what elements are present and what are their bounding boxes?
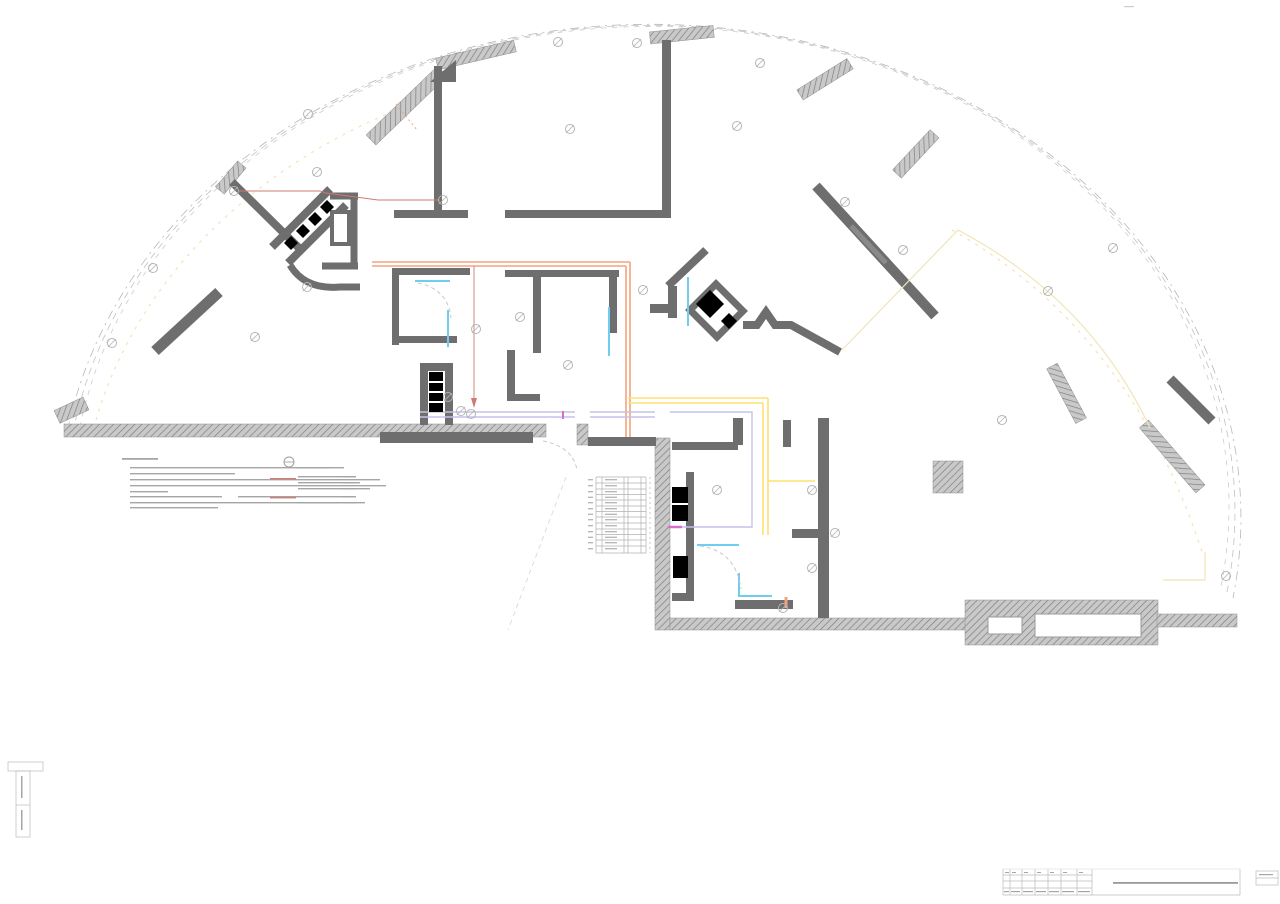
junction-symbol-tick (633, 39, 641, 47)
vestibule2-zigzag-wall (743, 312, 840, 352)
annotation-text-line (122, 458, 158, 460)
wall (733, 418, 743, 445)
schedule-row-number (588, 514, 593, 515)
schedule-cell-text (605, 537, 617, 538)
schedule-row-number (588, 479, 593, 480)
annotation-text-line (130, 491, 168, 492)
schedule-cell-text (605, 479, 617, 480)
schedule-row-number (588, 485, 593, 486)
schedule-row-number (588, 548, 593, 549)
junction-symbol-tick (313, 168, 321, 176)
door-swing-arc (700, 546, 741, 589)
vestibule2-wall-h (650, 304, 670, 313)
wall (507, 350, 515, 400)
annotation-text-line (1005, 872, 1009, 873)
junction-symbol-tick (756, 59, 764, 67)
wall (380, 432, 533, 443)
schedule-row-number (588, 497, 593, 498)
schedule-row-number (588, 542, 593, 543)
junction-symbol-tick (808, 564, 816, 572)
wall (783, 420, 791, 447)
schedule-row-number (588, 519, 593, 520)
electrical-panel (673, 556, 688, 578)
hatch-wall-bottom-right-a (670, 618, 966, 630)
window-opening-small (988, 617, 1022, 634)
annotation-text-line (342, 482, 356, 483)
leader-faint (508, 477, 566, 630)
side-stamp-rotated-text (21, 810, 23, 830)
vestibule1-band-top (272, 189, 330, 247)
wall (434, 66, 442, 216)
wall (392, 268, 399, 345)
schedule-cell-text (605, 542, 617, 543)
annotation-text-line (130, 485, 386, 486)
annotation-text-line (1063, 872, 1067, 873)
annotation-text-line (1023, 891, 1033, 892)
annotation-text-line (298, 502, 340, 503)
wall-diagonal-far-right (1170, 379, 1212, 421)
side-stamp-rotated-text (21, 776, 23, 798)
hatch-wall-bottom-right-b (1157, 614, 1237, 627)
junction-symbol-tick (639, 286, 647, 294)
junction-symbol-tick (808, 486, 816, 494)
wall (392, 268, 470, 275)
annotation-text-line (342, 488, 356, 489)
wall (505, 270, 619, 277)
wall (588, 437, 656, 446)
annotation-text-line (130, 479, 380, 480)
annotation-text-line (1050, 872, 1054, 873)
annotation-text-line (1049, 891, 1059, 892)
wall (394, 210, 468, 218)
vestibule1-window (332, 212, 349, 244)
annotation-text-line (296, 467, 344, 468)
annotation-text-line (1036, 891, 1046, 892)
annotation-text-line (1259, 874, 1273, 875)
junction-symbol-tick (831, 529, 839, 537)
schedule-cell-text (605, 525, 617, 526)
circuit-cyan (739, 573, 772, 596)
wall (609, 275, 617, 333)
schedule-cell-text (605, 548, 617, 549)
wall (533, 275, 541, 353)
annotation-text-line (298, 488, 370, 489)
annotation-text-line (1062, 891, 1074, 892)
wall (507, 394, 540, 401)
hatch-wall-left-end-cap (54, 397, 89, 423)
wall-freestanding-left (155, 292, 219, 351)
annotation-text-line (1079, 872, 1083, 873)
junction-symbol-tick (108, 339, 116, 347)
annotation-text-line (1012, 872, 1016, 873)
junction-symbol-tick (554, 38, 562, 46)
hatch-wall-center-vertical (655, 438, 670, 630)
setback-arc-right (952, 230, 1202, 552)
annotation-text-line (342, 476, 356, 477)
schedule-row-number (588, 531, 593, 532)
junction-symbol-tick (713, 486, 721, 494)
annotation-text-line (1078, 891, 1090, 892)
annotation-text-line (1024, 872, 1028, 873)
schedule-cell-text (605, 514, 617, 515)
schedule-cell-text (605, 519, 617, 520)
schedule-row-number (588, 502, 593, 503)
junction-symbol-tick (516, 313, 524, 321)
annotation-text-line (1004, 891, 1009, 892)
wall (818, 418, 829, 618)
schedule-cell-text (605, 485, 617, 486)
junction-symbol-tick (251, 333, 259, 341)
schedule-row-number (588, 491, 593, 492)
circuit-yellow (763, 398, 768, 535)
schedule-row-number (588, 537, 593, 538)
annotation-text-line (130, 473, 235, 474)
schedule-row-number (588, 525, 593, 526)
junction-symbol-tick (457, 407, 465, 415)
junction-symbol-tick (472, 325, 480, 333)
schedule-row-number (588, 508, 593, 509)
side-stamp-vertical-box (16, 771, 30, 837)
junction-symbol-tick (1109, 244, 1117, 252)
door-swing-arc (543, 441, 577, 470)
wall (792, 529, 818, 538)
junction-symbol-tick (841, 198, 849, 206)
circuit-lavender (420, 412, 575, 417)
circuit-yellow (628, 398, 768, 403)
document-page (0, 0, 1280, 904)
wall (672, 442, 738, 450)
schedule-cell-text (605, 497, 617, 498)
wall (505, 210, 667, 218)
circuit-pale-bottom-right (1163, 552, 1205, 580)
junction-symbol-tick (564, 361, 572, 369)
circuit-red-arrow (471, 398, 477, 408)
schedule-cell-text (605, 491, 617, 492)
corner-mark (1124, 6, 1134, 7)
annotation-text-line (270, 497, 296, 498)
hatch-wall-arc-top-center (649, 25, 714, 44)
junction-symbol-tick (304, 110, 312, 118)
hatch-pier-entrance (577, 424, 588, 445)
wall (672, 593, 694, 601)
schedule-cell-text (605, 502, 617, 503)
annotation-text-line (342, 502, 356, 503)
vestibule2-wall-v (668, 286, 677, 318)
annotation-text-line (130, 496, 222, 497)
wall (420, 363, 428, 425)
annotation-text-line (342, 496, 356, 497)
hatch-column (933, 461, 963, 493)
hatch-wall-arc-top-right (797, 59, 853, 100)
annotation-text-line (270, 478, 296, 479)
circuit-lavender (590, 412, 655, 417)
annotation-text-line (1113, 882, 1238, 884)
hatch-wall-arc-far-right-lower (1139, 420, 1204, 493)
junction-symbol-tick (899, 246, 907, 254)
hatch-wall-arc-right (893, 130, 939, 178)
wall (662, 40, 671, 218)
side-stamp-top-box (8, 762, 43, 771)
schedule-cell-text (605, 508, 617, 509)
wall-diagonal-right-inner (851, 226, 886, 263)
hatch-wall-arc-far-right-upper (1047, 363, 1087, 423)
window-opening-large (1035, 614, 1141, 637)
door-swing-arc (418, 283, 451, 318)
junction-symbol-tick (733, 122, 741, 130)
schedule-cell-text (605, 531, 617, 532)
junction-symbol-tick (566, 125, 574, 133)
floor-plan-drawing (0, 0, 1280, 904)
annotation-text-line (1037, 872, 1041, 873)
junction-symbol-tick (998, 416, 1006, 424)
annotation-text-line (130, 507, 218, 508)
annotation-text-line (1011, 891, 1020, 892)
wall (735, 600, 793, 609)
